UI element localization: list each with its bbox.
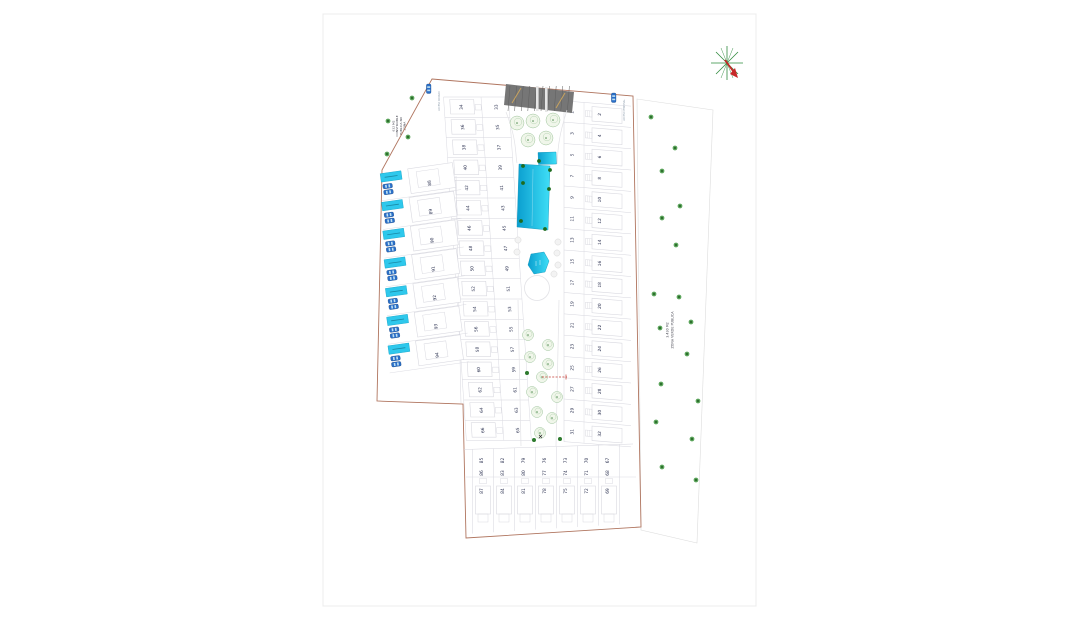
tree-icon bbox=[547, 363, 549, 365]
tree-icon bbox=[691, 438, 693, 440]
lot-number: 94 bbox=[434, 352, 441, 359]
planter-stone bbox=[555, 239, 561, 245]
lot-number: 58 bbox=[475, 347, 481, 353]
lot-number: 81 bbox=[521, 488, 527, 494]
tree-icon bbox=[659, 327, 661, 329]
lot-number: 93 bbox=[433, 323, 440, 330]
tree-icon bbox=[556, 396, 558, 398]
planter-stone bbox=[555, 262, 561, 268]
tree-icon bbox=[653, 293, 655, 295]
lot-number: 90 bbox=[429, 237, 436, 244]
site-plan-svg: ZONA VERDE PUBLICA3.430 M2ZONAPUBLICA NO… bbox=[0, 0, 1070, 620]
house-footprint bbox=[592, 320, 622, 337]
lot-number: 67 bbox=[605, 458, 611, 464]
lot-number: 36 bbox=[460, 124, 466, 130]
lot-number: 23 bbox=[570, 343, 576, 349]
tree-icon bbox=[545, 137, 547, 139]
lot-number: 59 bbox=[511, 367, 517, 373]
access-label: ACCESO PEATONAL bbox=[623, 99, 626, 121]
tree-icon bbox=[532, 438, 536, 442]
tree-icon bbox=[660, 383, 662, 385]
lot-number: 62 bbox=[477, 387, 483, 393]
tree-icon bbox=[661, 466, 663, 468]
lot-number: 60 bbox=[476, 367, 482, 373]
access-label: ACCESO RODADO bbox=[438, 91, 441, 111]
tree-icon bbox=[674, 147, 676, 149]
lot-number: 91 bbox=[430, 266, 437, 273]
lot-number: 76 bbox=[542, 458, 548, 464]
lot-number: 64 bbox=[479, 407, 485, 413]
planter-stone bbox=[515, 237, 521, 243]
house-footprint bbox=[592, 341, 622, 358]
lot-number: 40 bbox=[463, 165, 469, 171]
tree-icon bbox=[558, 437, 562, 441]
lot-number: 16 bbox=[597, 260, 603, 266]
tree-icon bbox=[650, 116, 652, 118]
lot-number: 33 bbox=[494, 104, 500, 110]
lot-number: 92 bbox=[432, 294, 439, 301]
lot-number: 35 bbox=[495, 124, 501, 130]
main-pool bbox=[538, 152, 557, 165]
tree-icon bbox=[531, 391, 533, 393]
tree-icon bbox=[697, 400, 699, 402]
tree-icon bbox=[547, 344, 549, 346]
lot-number: 80 bbox=[521, 470, 527, 476]
lot-number: 48 bbox=[468, 246, 474, 252]
house-footprint bbox=[592, 170, 622, 187]
zona-verde-publica-label: ZONA VERDE PUBLICA bbox=[671, 311, 675, 349]
lot-number: 66 bbox=[480, 427, 486, 433]
lot-number: 19 bbox=[570, 301, 576, 307]
bush-icon bbox=[521, 181, 525, 185]
lot-number: 45 bbox=[502, 225, 508, 231]
lot-number: 41 bbox=[499, 185, 505, 191]
lot-number: 49 bbox=[504, 266, 510, 272]
lot-number: 31 bbox=[570, 429, 576, 435]
lot-number: 84 bbox=[500, 488, 506, 494]
house-footprint bbox=[592, 256, 622, 273]
car-icon bbox=[611, 93, 616, 103]
lot-number: 72 bbox=[584, 488, 590, 494]
tree-icon bbox=[527, 139, 529, 141]
car-icon bbox=[611, 93, 616, 103]
lot-number: 85 bbox=[479, 458, 485, 464]
tree-icon bbox=[679, 205, 681, 207]
lot-number: 52 bbox=[471, 286, 477, 292]
zona-verde-publica-label: 3.430 M2 bbox=[665, 322, 669, 337]
lot-number: 75 bbox=[563, 488, 569, 494]
tree-icon bbox=[411, 97, 413, 99]
lot-number: 15 bbox=[570, 258, 576, 264]
lot-number: 87 bbox=[479, 488, 485, 494]
bush-icon bbox=[548, 168, 552, 172]
lot-number: 88 bbox=[426, 179, 433, 186]
lot-number: 18 bbox=[597, 282, 603, 288]
lot-number: 21 bbox=[570, 322, 576, 328]
tree-icon bbox=[678, 296, 680, 298]
house-footprint bbox=[592, 298, 622, 315]
lot-number: 71 bbox=[584, 470, 590, 476]
lot-number: 79 bbox=[521, 458, 527, 464]
house-footprint bbox=[592, 426, 622, 443]
lot-number: 20 bbox=[597, 303, 603, 309]
lot-number: 24 bbox=[597, 346, 603, 352]
house-footprint bbox=[592, 128, 622, 145]
lot-number: 13 bbox=[570, 237, 576, 243]
house-footprint bbox=[592, 192, 622, 209]
house-footprint bbox=[592, 405, 622, 422]
house-footprint bbox=[592, 277, 622, 294]
tree-icon bbox=[675, 244, 677, 246]
lot-number: 82 bbox=[500, 458, 506, 464]
lot-number: 89 bbox=[428, 208, 435, 215]
lot-number: 11 bbox=[570, 216, 576, 222]
tree-icon bbox=[407, 136, 409, 138]
lot-number: 42 bbox=[464, 185, 470, 191]
lot-number: 77 bbox=[542, 470, 548, 476]
house-footprint bbox=[592, 149, 622, 166]
lot-number: 12 bbox=[597, 218, 603, 224]
car-icon bbox=[426, 84, 431, 94]
planter-stone bbox=[514, 249, 520, 255]
lot-number: 44 bbox=[465, 205, 471, 211]
tree-icon bbox=[387, 120, 389, 122]
bush-icon bbox=[521, 164, 525, 168]
bush-icon bbox=[537, 159, 541, 163]
tree-icon bbox=[552, 119, 554, 121]
lot-number: 43 bbox=[500, 205, 506, 211]
planter-stone bbox=[551, 271, 557, 277]
canopy-gap bbox=[536, 86, 539, 111]
lot-number: 25 bbox=[570, 365, 576, 371]
tree-icon bbox=[539, 432, 541, 434]
tree-icon bbox=[386, 153, 388, 155]
lot-number: 17 bbox=[570, 279, 576, 285]
lot-number: 57 bbox=[510, 347, 516, 353]
planter-stone bbox=[554, 250, 560, 256]
zona-publica-label: CONSTRUIBLE bbox=[395, 115, 399, 136]
lot-number: 86 bbox=[479, 470, 485, 476]
lot-number: 46 bbox=[467, 225, 473, 231]
screenshot-canvas: ZONA VERDE PUBLICA3.430 M2ZONAPUBLICA NO… bbox=[0, 0, 1070, 620]
lot-number: 26 bbox=[597, 367, 603, 373]
house-footprint bbox=[592, 107, 622, 124]
house-footprint bbox=[592, 383, 622, 400]
car-icon bbox=[427, 86, 430, 88]
lot-number: 61 bbox=[512, 387, 518, 393]
tree-icon bbox=[695, 479, 697, 481]
lot-number: 29 bbox=[570, 407, 576, 413]
lot-number: 27 bbox=[570, 386, 576, 392]
lot-number: 51 bbox=[506, 286, 512, 292]
car-icon bbox=[427, 90, 430, 92]
lot-number: 30 bbox=[597, 409, 603, 415]
lot-number: 68 bbox=[605, 470, 611, 476]
house-footprint bbox=[592, 213, 622, 230]
lot-number: 69 bbox=[605, 488, 611, 494]
lot-number: 78 bbox=[542, 488, 548, 494]
tree-icon bbox=[516, 122, 518, 124]
lot-number: 50 bbox=[469, 266, 475, 272]
lot-number: 37 bbox=[496, 145, 502, 151]
tree-icon bbox=[527, 334, 529, 336]
bush-icon bbox=[519, 219, 523, 223]
lot-number: 55 bbox=[508, 326, 514, 332]
lot-number: 73 bbox=[563, 458, 569, 464]
lot-number: 34 bbox=[459, 104, 465, 110]
lot-number: 38 bbox=[461, 145, 467, 151]
tree-icon bbox=[532, 120, 534, 122]
lot-number: 14 bbox=[597, 239, 603, 245]
car-icon bbox=[426, 84, 431, 94]
lot-number: 47 bbox=[503, 246, 509, 252]
lot-number: 83 bbox=[500, 470, 506, 476]
tree-icon bbox=[690, 321, 692, 323]
lot-number: 74 bbox=[563, 470, 569, 476]
tree-icon bbox=[686, 353, 688, 355]
tree-icon bbox=[525, 371, 529, 375]
tree-icon bbox=[661, 170, 663, 172]
bush-icon bbox=[543, 227, 547, 231]
house-footprint bbox=[592, 234, 622, 251]
house-footprint bbox=[592, 362, 622, 379]
lot-number: 39 bbox=[498, 165, 504, 171]
lot-number: 56 bbox=[473, 326, 479, 332]
tree-icon bbox=[536, 411, 538, 413]
car-icon bbox=[612, 99, 615, 101]
tree-icon bbox=[551, 417, 553, 419]
lot-number: 22 bbox=[597, 324, 603, 330]
lot-number: 28 bbox=[597, 388, 603, 394]
lot-number: 54 bbox=[472, 306, 478, 312]
tree-icon bbox=[655, 421, 657, 423]
car-icon bbox=[612, 95, 615, 97]
canopy-gap bbox=[545, 87, 548, 112]
lot-number: 10 bbox=[597, 196, 603, 202]
lot-number: 63 bbox=[514, 407, 520, 413]
zona-publica-label: 632 M2 bbox=[391, 120, 395, 131]
lot-number: 32 bbox=[597, 431, 603, 437]
lot-number: 70 bbox=[584, 458, 590, 464]
tree-icon bbox=[529, 356, 531, 358]
lot-number: 53 bbox=[507, 306, 513, 312]
tree-icon bbox=[661, 217, 663, 219]
bush-icon bbox=[547, 187, 551, 191]
